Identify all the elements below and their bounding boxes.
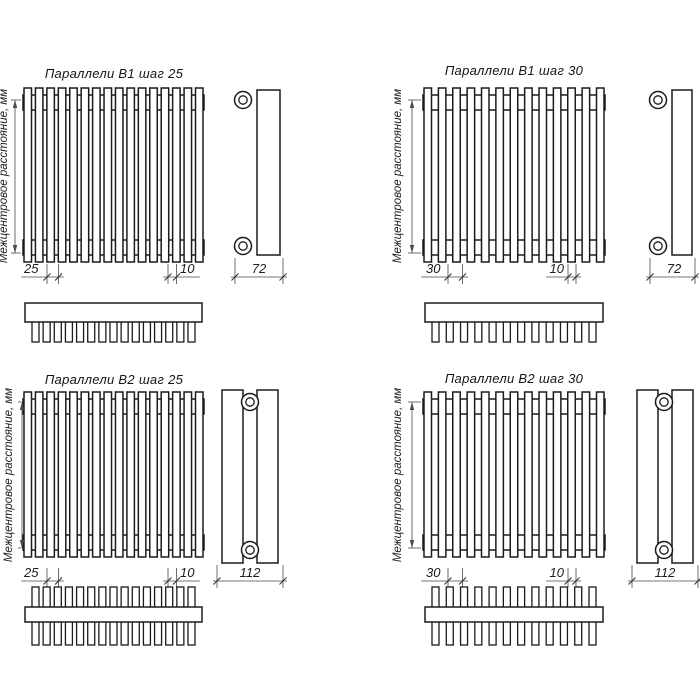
pipe-connection-inner [239,96,247,104]
panel-title: Параллели В1 шаг 30 [445,63,584,78]
radiator-tube [70,88,78,262]
radiator-tube [438,392,446,557]
step-dimension-value: 25 [23,261,39,276]
pipe-connection-inner [654,242,662,250]
panel-title: Параллели В1 шаг 25 [45,66,184,81]
panel-title: Параллели В2 шаг 25 [45,372,184,387]
radiator-tube [24,392,32,557]
radiator-tube [539,88,547,262]
vertical-dimension: Межцентровое расстояние, мм [392,388,421,562]
top-view [425,587,603,645]
radiator-tube [47,88,55,262]
front-view [423,392,605,557]
radiator-tube [553,392,561,557]
bottom-dimensions: 2510 [21,565,200,588]
radiator-tube [424,392,432,557]
pipe-connection-inner [246,398,254,406]
top-view [25,303,202,342]
panel-b2-step25: Параллели В2 шаг 25Межцентровое расстоян… [0,370,350,670]
radiator-tube [196,88,204,262]
radiator-tube [81,88,89,262]
radiator-tube [138,88,146,262]
vertical-dimension-label: Межцентровое расстояние, мм [3,388,15,562]
radiator-tube [482,88,490,262]
radiator-tube [568,88,576,262]
radiator-tube [184,88,192,262]
radiator-tube [47,392,55,557]
drawing-b2-step25: Параллели В2 шаг 25Межцентровое расстоян… [0,370,350,670]
radiator-tube [104,392,112,557]
side-view: 112 [628,390,700,588]
side-profile [257,90,280,255]
panel-b1-step30: Параллели В1 шаг 30Межцентровое расстоян… [350,58,700,358]
plan-collector [25,303,202,322]
radiator-tube [510,88,518,262]
radiator-tube [539,392,547,557]
radiator-tube [173,392,181,557]
drawing-b1-step30: Параллели В1 шаг 30Межцентровое расстоян… [350,58,700,358]
radiator-tube [161,88,169,262]
radiator-tube [467,392,475,557]
radiator-tube [93,88,101,262]
pipe-connection-inner [660,398,668,406]
side-profile [672,90,692,255]
drawing-b1-step25: Параллели В1 шаг 25Межцентровое расстоян… [0,58,350,358]
vertical-dimension: Межцентровое расстояние, мм [392,89,421,263]
radiator-tube [150,392,158,557]
step-dimension-value: 30 [426,565,441,580]
drawing-b2-step30: Параллели В2 шаг 30Межцентровое расстоян… [350,370,700,670]
radiator-tube [58,88,66,262]
radiator-tube [173,88,181,262]
radiator-tube [161,392,169,557]
pipe-connection-inner [654,96,662,104]
front-view [23,392,204,557]
pipe-connection-inner [239,242,247,250]
radiator-tube [525,392,533,557]
front-view [423,88,605,262]
radiator-tube [582,88,590,262]
radiator-tube [24,88,32,262]
plan-collector [425,607,603,622]
step-dimension-value: 25 [23,565,39,580]
radiator-tube [58,392,66,557]
radiator-tube [70,392,78,557]
radiator-tube [453,88,461,262]
radiator-tube [467,88,475,262]
radiator-tube [127,88,134,262]
tube-width-dimension-value: 10 [550,261,565,276]
pipe-connection-inner [246,546,254,554]
radiator-tube [597,88,605,262]
radiator-tube [597,392,605,557]
radiator-tube [496,392,504,557]
radiator-tube [35,392,43,557]
radiator-tube [568,392,576,557]
radiator-tube [453,392,461,557]
radiator-tube [150,88,158,262]
radiator-tube [482,392,490,557]
step-dimension-value: 30 [426,261,441,276]
top-view [25,587,202,645]
side-profile-front-row [637,390,658,563]
side-profile-back-row [672,390,693,563]
plan-collector [25,607,202,622]
vertical-dimension-label: Межцентровое расстояние, мм [0,89,10,263]
side-view: 72 [231,90,287,284]
top-view [425,303,603,342]
radiator-tube [127,392,134,557]
vertical-dimension-label: Межцентровое расстояние, мм [392,89,404,263]
arrowhead-down [13,245,17,253]
side-view: 72 [646,90,699,284]
depth-dimension-value: 72 [667,261,682,276]
radiator-tube [184,392,192,557]
panel-b1-step25: Параллели В1 шаг 25Межцентровое расстоян… [0,58,350,358]
radiator-tube [104,88,112,262]
side-profile-back-row [257,390,278,563]
radiator-tube [553,88,561,262]
bottom-dimensions: 2510 [21,261,200,284]
arrowhead-down [410,245,414,253]
arrowhead-down [410,540,414,548]
depth-dimension-value: 112 [655,565,676,580]
vertical-dimension-label: Межцентровое расстояние, мм [392,388,404,562]
depth-dimension-value: 112 [240,565,261,580]
pipe-connection-inner [660,546,668,554]
vertical-dimension: Межцентровое расстояние, мм [0,89,21,263]
radiator-tube [196,392,204,557]
plan-collector [425,303,603,322]
arrowhead-up [410,100,414,108]
radiator-tube [496,88,504,262]
radiator-tube [115,88,123,262]
radiator-tube [81,392,89,557]
front-view [23,88,204,262]
radiator-tube [93,392,101,557]
bottom-dimensions: 3010 [421,565,581,588]
radiator-tube [424,88,432,262]
tube-width-dimension-value: 10 [550,565,565,580]
radiator-tube [582,392,590,557]
technical-drawing: Параллели В1 шаг 25Межцентровое расстоян… [0,0,700,700]
tube-width-dimension-value: 10 [180,261,195,276]
bottom-dimensions: 3010 [421,261,581,284]
panel-b2-step30: Параллели В2 шаг 30Межцентровое расстоян… [350,370,700,670]
side-view: 112 [213,390,287,588]
radiator-tube [138,392,146,557]
radiator-tube [115,392,123,557]
radiator-tube [438,88,446,262]
tube-width-dimension-value: 10 [180,565,195,580]
arrowhead-up [410,402,414,410]
arrowhead-up [13,100,17,108]
depth-dimension-value: 72 [252,261,267,276]
radiator-tube [525,88,533,262]
side-profile-front-row [222,390,243,563]
radiator-tube [510,392,518,557]
radiator-tube [35,88,43,262]
panel-title: Параллели В2 шаг 30 [445,371,584,386]
vertical-dimension: Межцентровое расстояние, мм [3,388,24,562]
